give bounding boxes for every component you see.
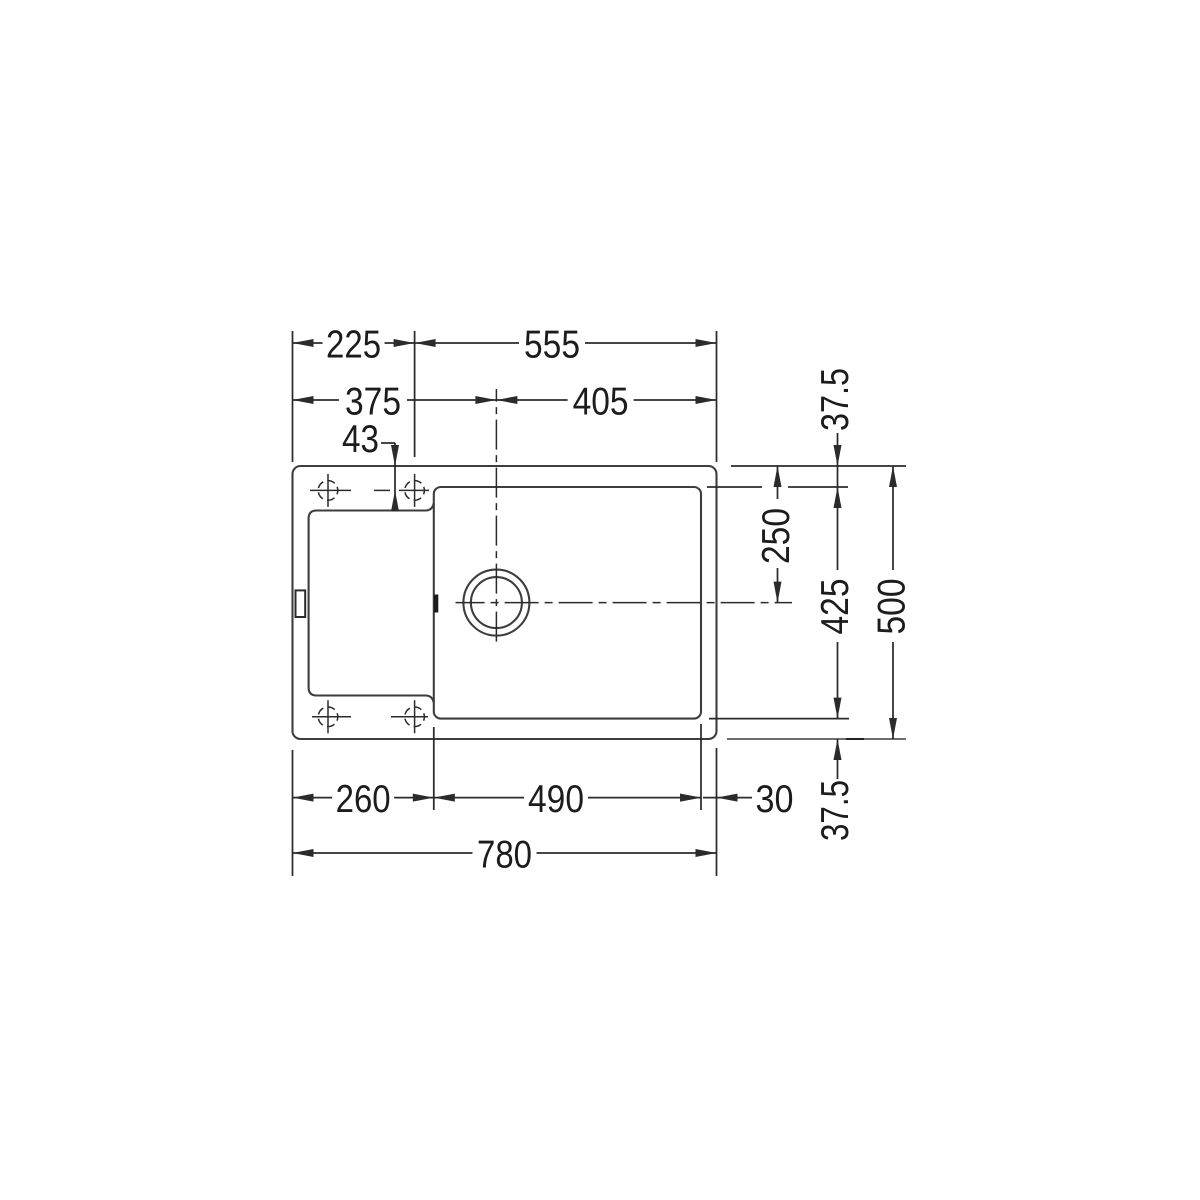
svg-text:500: 500: [871, 579, 914, 635]
svg-text:43: 43: [342, 418, 379, 461]
svg-text:780: 780: [477, 834, 532, 877]
svg-text:37.5: 37.5: [814, 780, 857, 841]
svg-text:555: 555: [524, 324, 580, 367]
svg-text:260: 260: [336, 778, 391, 821]
svg-text:37.5: 37.5: [814, 368, 857, 431]
svg-text:405: 405: [573, 381, 629, 424]
svg-text:250: 250: [755, 508, 798, 564]
svg-text:225: 225: [326, 324, 381, 367]
svg-text:30: 30: [756, 778, 794, 821]
svg-text:425: 425: [814, 579, 857, 635]
svg-text:490: 490: [528, 778, 584, 821]
